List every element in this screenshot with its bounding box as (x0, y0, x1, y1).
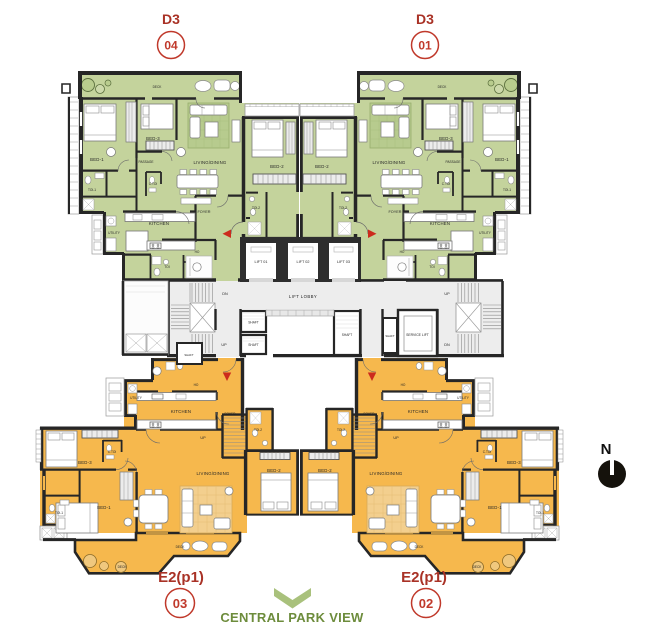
svg-text:TOI-2: TOI-2 (252, 206, 260, 210)
svg-text:BED-2: BED-2 (315, 164, 329, 169)
svg-text:HO: HO (195, 250, 200, 254)
svg-text:TOI-1: TOI-1 (55, 511, 63, 515)
svg-text:UTILITY: UTILITY (108, 231, 121, 235)
svg-text:SHAFT: SHAFT (385, 334, 394, 338)
svg-text:UTILITY: UTILITY (457, 396, 470, 400)
svg-text:DECK: DECK (415, 545, 425, 549)
svg-text:KITCHEN: KITCHEN (430, 221, 450, 226)
svg-text:LIVING/DINING: LIVING/DINING (370, 471, 403, 476)
svg-text:FOYER: FOYER (197, 210, 210, 214)
svg-text:UP: UP (444, 292, 450, 296)
svg-text:DECK: DECK (473, 565, 483, 569)
svg-text:BED-3: BED-3 (78, 460, 92, 465)
svg-text:LIVING/DINING: LIVING/DINING (197, 471, 230, 476)
svg-text:DECK: DECK (153, 85, 163, 89)
svg-text:LIFT 02: LIFT 02 (296, 260, 309, 264)
svg-text:SHAFT: SHAFT (248, 321, 259, 325)
svg-text:UTILITY: UTILITY (130, 396, 143, 400)
svg-text:LIFT 01: LIFT 01 (254, 260, 267, 264)
svg-text:HO: HO (401, 383, 406, 387)
svg-text:BED-2: BED-2 (267, 468, 281, 473)
svg-text:LIVING/DINING: LIVING/DINING (194, 160, 227, 165)
svg-text:HO: HO (194, 383, 199, 387)
svg-text:D3: D3 (162, 11, 180, 27)
svg-text:BED-1: BED-1 (488, 505, 502, 510)
svg-text:FOYER: FOYER (364, 412, 376, 416)
svg-text:FOYER: FOYER (225, 412, 237, 416)
svg-text:C.TOI: C.TOI (442, 182, 451, 186)
svg-text:SHAFT: SHAFT (248, 343, 259, 347)
svg-text:TOI-2: TOI-2 (337, 428, 345, 432)
svg-text:N: N (601, 441, 612, 458)
svg-text:C.TOI: C.TOI (108, 450, 117, 454)
svg-text:BED-3: BED-3 (507, 460, 521, 465)
svg-text:DN: DN (222, 292, 228, 296)
svg-text:BED-2: BED-2 (270, 164, 284, 169)
svg-text:DECK: DECK (118, 565, 128, 569)
svg-text:DECK: DECK (176, 545, 186, 549)
svg-text:PASSAGE: PASSAGE (139, 160, 154, 164)
svg-text:TOI-1: TOI-1 (503, 188, 511, 192)
svg-text:04: 04 (164, 39, 178, 53)
svg-text:LIVING/DINING: LIVING/DINING (373, 160, 406, 165)
svg-text:TOI: TOI (164, 265, 169, 269)
svg-text:D3: D3 (416, 11, 434, 27)
svg-text:C.TOI: C.TOI (483, 450, 492, 454)
svg-text:KITCHEN: KITCHEN (149, 221, 169, 226)
svg-text:SHAFT: SHAFT (184, 353, 193, 357)
svg-text:TOI: TOI (429, 265, 434, 269)
svg-text:E2(p1): E2(p1) (158, 569, 204, 586)
svg-text:E2(p1): E2(p1) (401, 569, 447, 586)
svg-text:C.TOI: C.TOI (149, 182, 158, 186)
svg-text:DECK: DECK (438, 85, 448, 89)
svg-text:LIFT 03: LIFT 03 (337, 260, 350, 264)
svg-text:BED-1: BED-1 (495, 157, 509, 162)
svg-text:BED-3: BED-3 (439, 136, 453, 141)
svg-text:01: 01 (418, 39, 432, 53)
svg-text:KITCHEN: KITCHEN (171, 409, 191, 414)
svg-text:UP: UP (221, 343, 227, 347)
svg-text:02: 02 (419, 596, 433, 611)
svg-text:TOI-2: TOI-2 (339, 206, 347, 210)
svg-text:SHAFT: SHAFT (342, 333, 353, 337)
svg-text:DN: DN (444, 343, 450, 347)
svg-text:UTILITY: UTILITY (479, 231, 492, 235)
svg-text:HO: HO (400, 250, 405, 254)
svg-text:SERVICE LIFT: SERVICE LIFT (406, 333, 429, 337)
svg-text:BED-3: BED-3 (146, 136, 160, 141)
svg-text:UP: UP (393, 436, 399, 440)
svg-text:PASSAGE: PASSAGE (446, 160, 461, 164)
svg-text:BED-2: BED-2 (318, 468, 332, 473)
svg-text:CENTRAL PARK VIEW: CENTRAL PARK VIEW (220, 610, 364, 625)
svg-text:TOI-2: TOI-2 (254, 428, 262, 432)
svg-text:TOI-1: TOI-1 (536, 511, 544, 515)
svg-text:BED-1: BED-1 (90, 157, 104, 162)
svg-text:BED-1: BED-1 (97, 505, 111, 510)
svg-text:LIFT LOBBY: LIFT LOBBY (289, 294, 317, 299)
svg-text:FOYER: FOYER (388, 210, 401, 214)
svg-text:TOI-1: TOI-1 (88, 188, 96, 192)
svg-text:UP: UP (200, 436, 206, 440)
svg-text:KITCHEN: KITCHEN (408, 409, 428, 414)
svg-text:03: 03 (173, 596, 187, 611)
